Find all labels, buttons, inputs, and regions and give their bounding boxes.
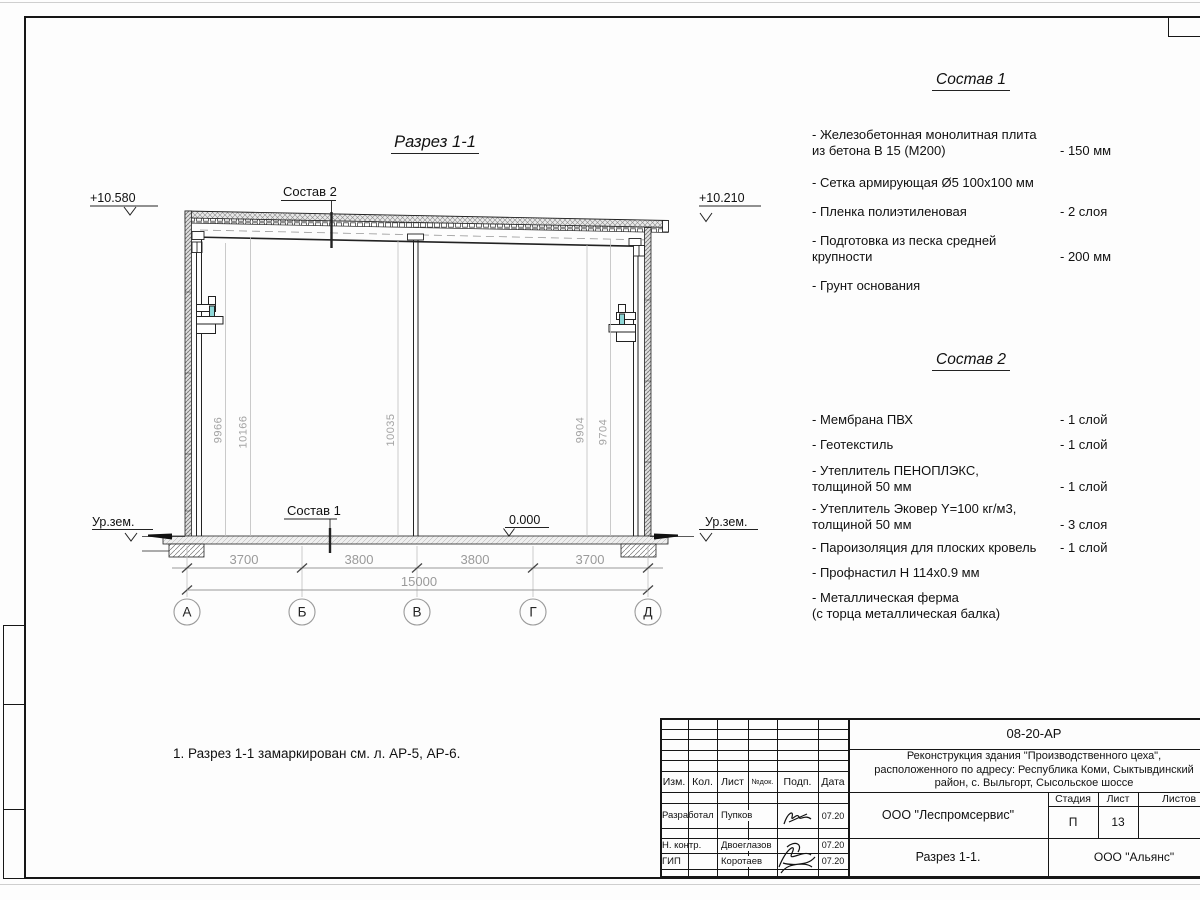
sheet-title: Разрез 1-1. — [848, 838, 1048, 876]
svg-text:10035: 10035 — [385, 413, 397, 446]
svg-text:+10.210: +10.210 — [699, 191, 745, 205]
col-header-doc: №док. — [748, 771, 777, 792]
col-header-izm: Изм. — [660, 771, 688, 792]
right-column-bracket — [609, 305, 636, 342]
composition-1-title: Состав 1 — [906, 71, 1036, 91]
axis-letters: А Б В Г Д — [182, 605, 652, 620]
list-item: - Металлическая ферма (с торца металличе… — [812, 590, 1200, 622]
svg-text:9704: 9704 — [598, 419, 610, 445]
svg-text:Ур.зем.: Ур.зем. — [92, 515, 134, 529]
svg-text:В: В — [412, 605, 421, 620]
svg-text:Б: Б — [298, 605, 307, 620]
svg-text:Д: Д — [643, 605, 652, 620]
svg-text:А: А — [182, 605, 191, 620]
svg-text:9966: 9966 — [213, 417, 225, 443]
row-role: Н. контр. — [662, 838, 722, 854]
left-wall — [185, 211, 192, 537]
right-column — [629, 239, 645, 537]
list-item: - Мембрана ПВХ - 1 слой — [812, 412, 1200, 428]
list-item: - Железобетонная монолитная плита из бет… — [812, 127, 1200, 159]
elevation-mark-zero: 0.000 — [504, 513, 550, 536]
row-role: ГИП — [662, 853, 722, 869]
left-column-bracket — [197, 297, 224, 334]
row-date: 07.20 — [818, 803, 848, 828]
sheets-label: Листов — [1138, 792, 1200, 806]
composition-1-list: - Железобетонная монолитная плита из бет… — [812, 127, 1200, 294]
svg-text:3700: 3700 — [576, 552, 605, 567]
list-item: - Подготовка из песка средней крупности … — [812, 233, 1200, 265]
foundation-left — [169, 544, 204, 557]
organization: ООО "Леспромсервис" — [848, 792, 1048, 838]
elevation-mark-right: +10.210 — [699, 191, 761, 222]
row-name: Коротаев — [720, 856, 763, 867]
list-item: - Геотекстиль - 1 слой — [812, 437, 1200, 453]
stage-value: П — [1048, 806, 1098, 838]
title-block: Изм. Кол. Лист №док. Подп. Дата Разработ… — [660, 718, 1200, 877]
svg-text:+10.580: +10.580 — [90, 191, 136, 205]
signature — [778, 806, 818, 828]
list-item: - Пароизоляция для плоских кровель - 1 с… — [812, 540, 1200, 556]
composition-2-title: Состав 2 — [906, 351, 1036, 371]
ground-wedge-left — [148, 534, 172, 540]
row-role: Разработал — [662, 803, 722, 828]
row-name: Пупков — [720, 810, 753, 821]
svg-text:0.000: 0.000 — [509, 513, 540, 527]
list-item: - Пленка полиэтиленовая - 2 слоя — [812, 204, 1200, 220]
leader-sostav-1: Состав 1 — [284, 503, 341, 553]
project-name: Реконструкция здания "Производственного … — [848, 749, 1200, 792]
roof-edge-cap — [663, 221, 669, 233]
ground-level-mark-left: Ур.зем. — [92, 515, 153, 541]
list-item: - Грунт основания — [812, 278, 1200, 294]
composition-2-list: - Мембрана ПВХ - 1 слой - Геотекстиль - … — [812, 412, 1200, 622]
list-item: - Сетка армирующая Ø5 100х100 мм — [812, 175, 1200, 191]
svg-text:3800: 3800 — [461, 552, 490, 567]
svg-text:Г: Г — [529, 605, 537, 620]
contractor: ООО "Альянс" — [1048, 838, 1200, 876]
svg-text:3800: 3800 — [345, 552, 374, 567]
stage-label: Стадия — [1048, 792, 1098, 806]
drawing-sheet: 9966 10166 10035 9904 9704 3700 3800 380… — [0, 0, 1200, 900]
svg-text:10166: 10166 — [238, 415, 250, 448]
view-title: Разрез 1-1 — [370, 133, 500, 154]
list-item: - Утеплитель ПЕНОПЛЭКС, толщиной 50 мм -… — [812, 463, 1200, 495]
svg-text:3700: 3700 — [230, 552, 259, 567]
svg-text:Состав 2: Состав 2 — [283, 184, 337, 199]
doc-number: 08-20-АР — [848, 718, 1200, 749]
sheet-label: Лист — [1098, 792, 1138, 806]
col-header-podp: Подп. — [777, 771, 818, 792]
right-wall — [645, 228, 652, 538]
sheet-number: 13 — [1098, 806, 1138, 838]
sheet-note: 1. Разрез 1-1 замаркирован см. л. АР-5, … — [173, 746, 460, 761]
foundation-right — [621, 544, 656, 557]
list-item: - Утеплитель Эковер Y=100 кг/м3, толщино… — [812, 501, 1200, 533]
floor-slab — [163, 536, 668, 544]
view-title-text: Разрез 1-1 — [391, 133, 479, 154]
col-header-data: Дата — [818, 771, 848, 792]
ground-level-mark-right: Ур.зем. — [699, 515, 758, 541]
row-name: Двоеглазов — [720, 840, 773, 851]
svg-text:Ур.зем.: Ур.зем. — [705, 515, 747, 529]
svg-text:Состав 1: Состав 1 — [287, 503, 341, 518]
col-header-list: Лист — [717, 771, 748, 792]
height-dimensions: 9966 10166 10035 9904 9704 — [213, 413, 610, 448]
list-item: - Профнастил Н 114х0.9 мм — [812, 565, 1200, 581]
row-date: 07.20 — [818, 853, 848, 869]
row-date: 07.20 — [818, 838, 848, 854]
total-dimension-text: 15000 — [401, 574, 437, 589]
col-header-kol: Кол. — [688, 771, 717, 792]
left-column — [192, 232, 204, 537]
middle-column — [408, 234, 424, 536]
svg-text:9904: 9904 — [575, 417, 587, 443]
elevation-mark-left: +10.580 — [90, 191, 158, 215]
signature — [774, 839, 820, 877]
